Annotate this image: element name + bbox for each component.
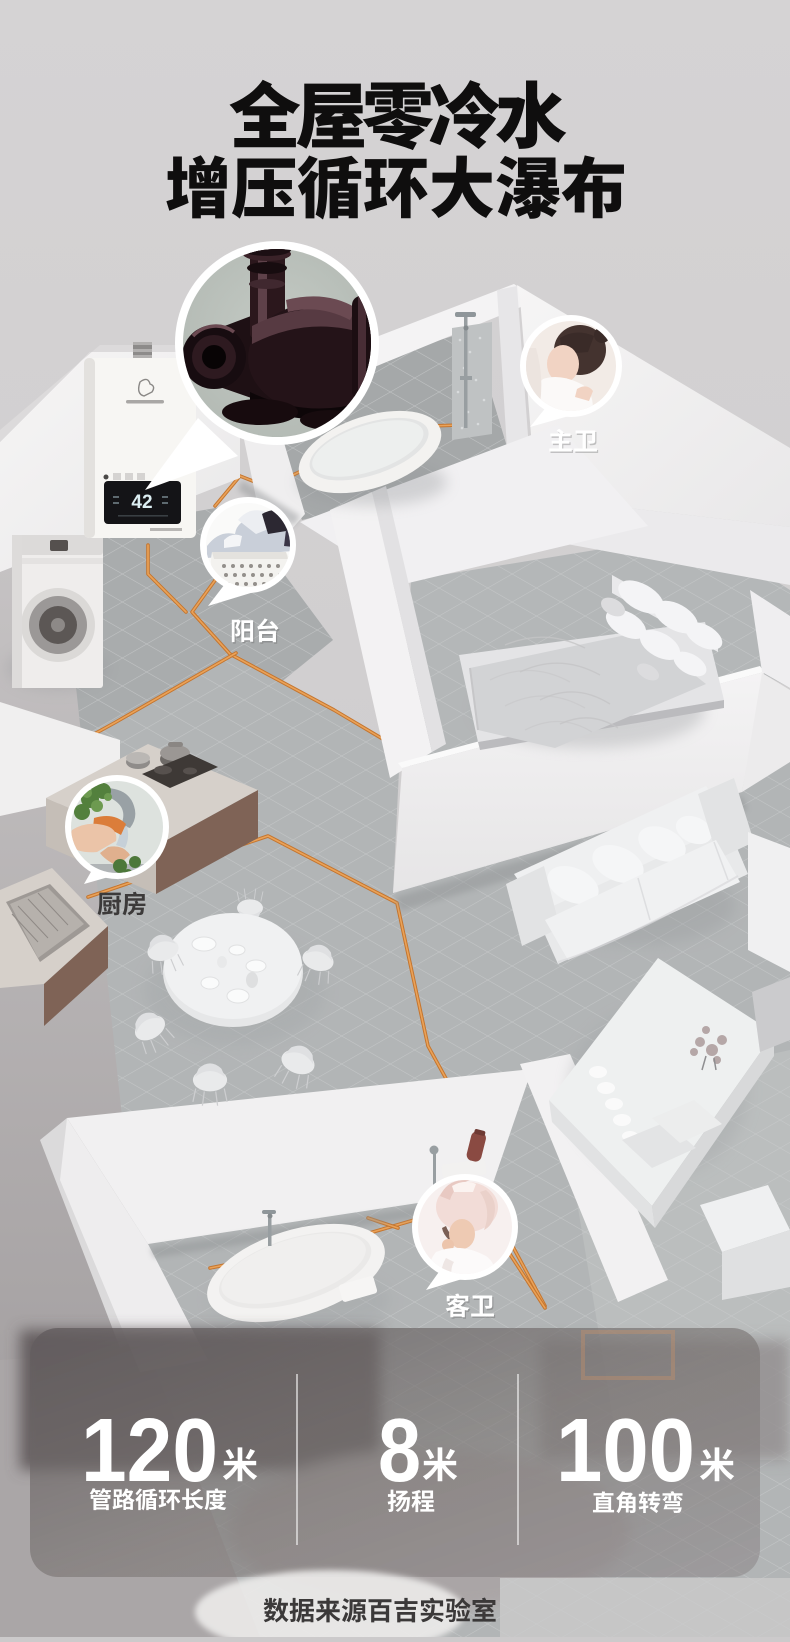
svg-text:42: 42 xyxy=(131,492,152,513)
svg-text:100: 100 xyxy=(556,1401,695,1501)
svg-text:8: 8 xyxy=(378,1401,421,1501)
svg-text:120: 120 xyxy=(81,1401,218,1501)
